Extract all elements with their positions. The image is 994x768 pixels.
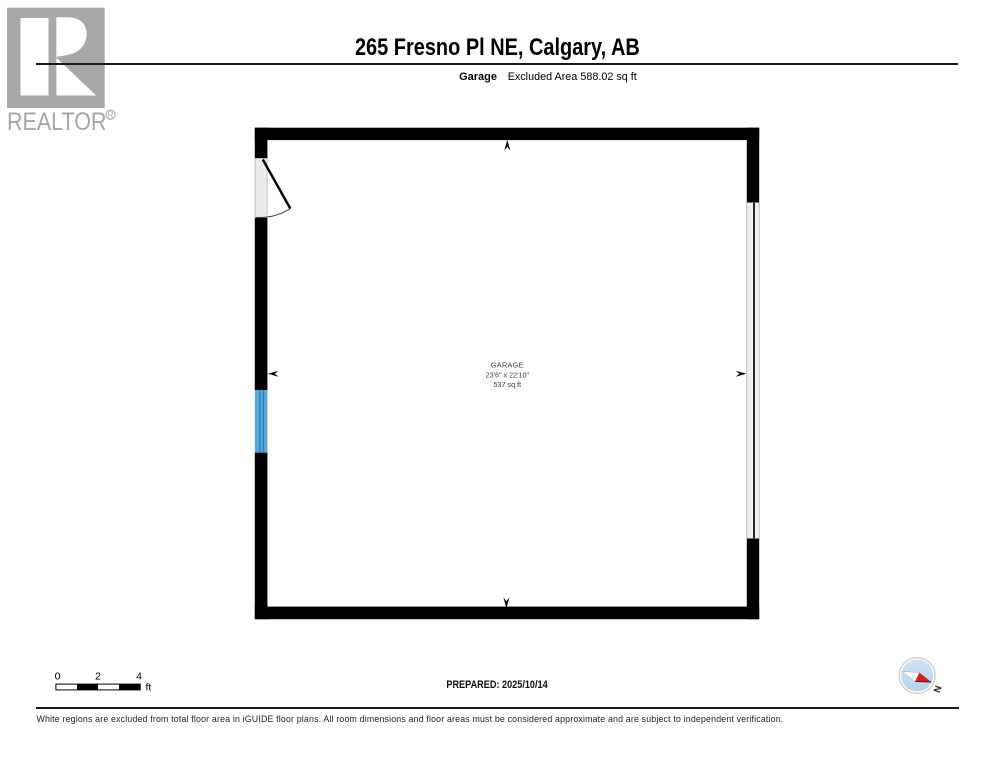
svg-text:N: N xyxy=(930,684,943,694)
svg-text:23'6" x 22'10": 23'6" x 22'10" xyxy=(486,370,530,379)
svg-text:GARAGE: GARAGE xyxy=(491,361,524,370)
svg-text:537 sq ft: 537 sq ft xyxy=(494,380,522,389)
